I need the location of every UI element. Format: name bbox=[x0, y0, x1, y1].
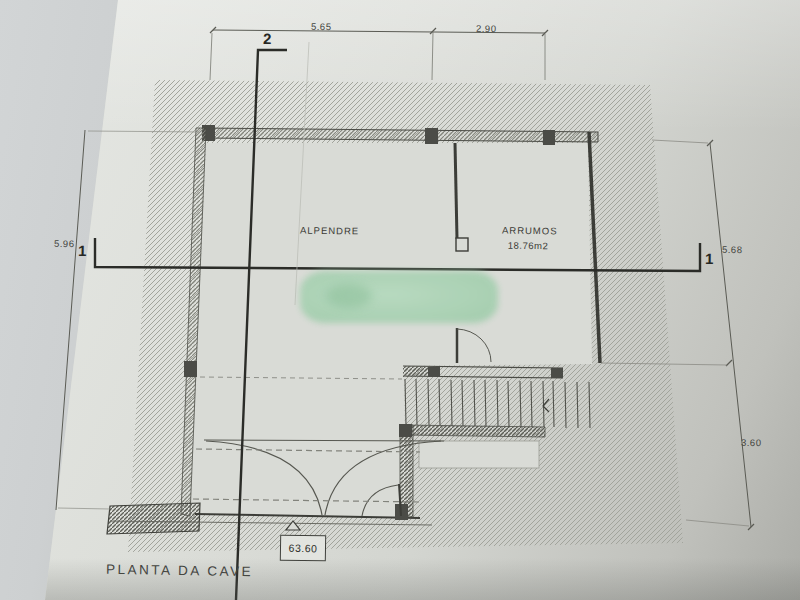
room-label-arrumos: ARRUMOS bbox=[502, 225, 554, 237]
dim-left-1: 5.96 bbox=[54, 238, 75, 249]
scanned-plan-photo: 5.65 2.90 5.96 5.68 3.60 2 1 1 ALPENDRE … bbox=[0, 0, 800, 600]
dim-top-2: 2.90 bbox=[476, 23, 497, 34]
divider-wall bbox=[455, 143, 457, 239]
paper-shadow bbox=[0, 558, 800, 600]
redaction-smudge bbox=[326, 284, 372, 308]
retaining-wall bbox=[107, 503, 200, 534]
pillar bbox=[425, 128, 438, 144]
room-label-alpendre: ALPENDRE bbox=[300, 225, 356, 237]
building-interior bbox=[190, 143, 592, 518]
dim-right-2: 3.60 bbox=[741, 437, 762, 448]
dim-top-1: 5.65 bbox=[311, 21, 332, 32]
section-marker-2: 2 bbox=[263, 30, 272, 47]
room-area-arrumos: 18.76m2 bbox=[502, 240, 554, 252]
pillar bbox=[184, 361, 197, 377]
pillar bbox=[543, 130, 555, 145]
level-value: 63.60 bbox=[289, 542, 318, 554]
dim-right-1: 5.68 bbox=[722, 244, 743, 255]
section-marker-1-right: 1 bbox=[705, 250, 714, 267]
stair-landing bbox=[419, 441, 539, 468]
wall-end-block bbox=[456, 238, 468, 251]
section-marker-1-left: 1 bbox=[78, 242, 87, 259]
